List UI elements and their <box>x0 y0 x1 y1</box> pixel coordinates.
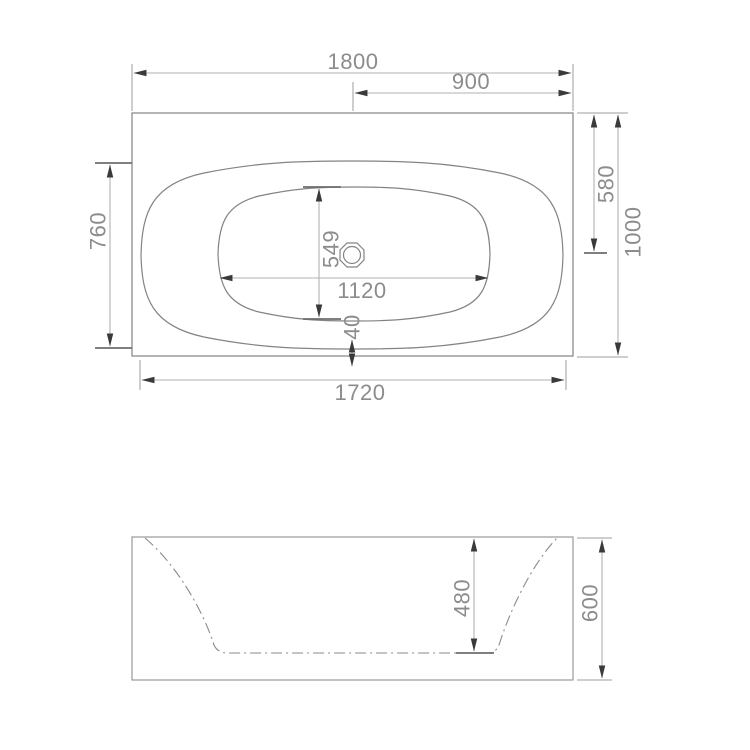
dim-label-basin-width: 549 <box>319 230 344 268</box>
dim-label-shell-length: 1720 <box>335 380 386 405</box>
dim-rim-gap: 40 <box>340 314 365 366</box>
bathtub-technical-drawing: 1800 900 580 1000 760 <box>0 0 750 750</box>
dim-center-to-end: 900 <box>353 69 571 111</box>
dim-label-overall-height: 600 <box>578 584 603 622</box>
basin-profile-hidden-line <box>145 538 557 653</box>
dim-shell-length: 1720 <box>140 360 566 405</box>
drawing-canvas: 1800 900 580 1000 760 <box>0 0 750 750</box>
dim-label-basin-depth: 480 <box>450 579 475 617</box>
dim-shell-height: 760 <box>86 163 132 348</box>
dim-basin-length: 1120 <box>220 278 488 303</box>
dim-label-basin-length: 1120 <box>337 278 386 303</box>
dim-label-overall-length: 1800 <box>328 49 379 74</box>
side-view: 480 600 <box>132 537 612 680</box>
dim-overall-width: 1000 <box>577 115 646 357</box>
dim-label-shell-height: 760 <box>86 212 111 250</box>
dim-label-edge-to-drain: 580 <box>594 165 619 203</box>
top-view: 1800 900 580 1000 760 <box>86 49 646 405</box>
dim-label-center-to-end: 900 <box>452 69 490 94</box>
dim-basin-depth: 480 <box>450 539 494 653</box>
drain-circle <box>344 247 361 264</box>
dim-overall-height: 600 <box>577 538 612 680</box>
dim-label-overall-width: 1000 <box>621 207 646 258</box>
dim-label-rim-gap: 40 <box>340 314 365 339</box>
